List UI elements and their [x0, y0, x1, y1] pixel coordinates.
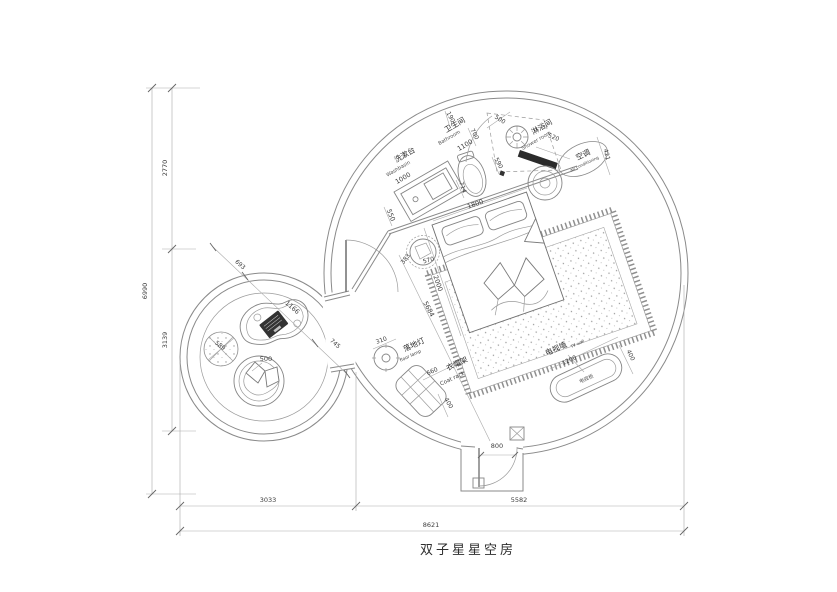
left-dimension-chain — [146, 84, 200, 498]
dim-bottom-left: 3033 — [260, 496, 277, 504]
dim-left-bottom: 3139 — [161, 332, 169, 349]
dim-lounge-edge: 693 — [233, 258, 246, 271]
dim-chair: 500 — [260, 355, 272, 363]
dim-entry-door: 800 — [491, 442, 503, 450]
entry-vestibule — [461, 427, 524, 491]
page-title: 双子星星空房 — [420, 542, 516, 558]
dim-bottom-right: 5582 — [511, 496, 528, 504]
dim-bottom-total: 8621 — [423, 521, 440, 529]
dim-left-total: 6990 — [141, 283, 149, 300]
floor-plan-page: 电视柜 — [0, 0, 837, 592]
dim-left-top: 2770 — [161, 160, 169, 177]
floor-plan-drawing: 电视柜 — [0, 0, 837, 592]
